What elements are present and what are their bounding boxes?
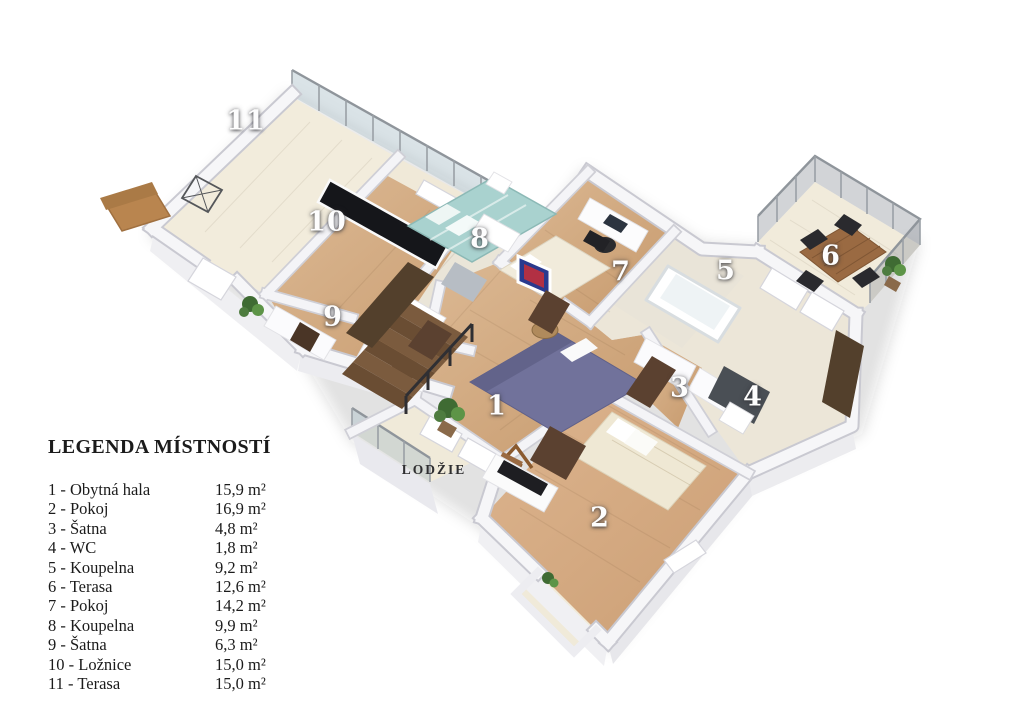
legend-item-area: 1,8 m²: [215, 538, 258, 557]
legend-item-area: 16,9 m²: [215, 499, 266, 518]
legend-item: 5 - Koupelna9,2 m²: [48, 558, 308, 577]
area-label-lodzie: LODŽIE: [402, 462, 467, 478]
legend-item: 4 - WC1,8 m²: [48, 538, 308, 557]
legend-item-label: 1 - Obytná hala: [48, 480, 150, 499]
floor-plan-page: 1110897561342LODŽIE LEGENDA MÍSTNOSTÍ 1 …: [0, 0, 1024, 724]
legend-item-label: 7 - Pokoj: [48, 596, 109, 615]
legend-item-label: 8 - Koupelna: [48, 616, 134, 635]
legend-item-label: 5 - Koupelna: [48, 558, 134, 577]
legend-item-area: 9,2 m²: [215, 558, 258, 577]
legend-item-area: 14,2 m²: [215, 596, 266, 615]
legend-item-area: 15,0 m²: [215, 674, 266, 693]
legend-item-label: 3 - Šatna: [48, 519, 107, 538]
legend-item: 6 - Terasa12,6 m²: [48, 577, 308, 596]
legend-item-label: 4 - WC: [48, 538, 96, 557]
legend-item: 7 - Pokoj14,2 m²: [48, 596, 308, 615]
legend-item: 10 - Ložnice15,0 m²: [48, 655, 308, 674]
legend-item-area: 4,8 m²: [215, 519, 258, 538]
legend-item-area: 15,0 m²: [215, 655, 266, 674]
legend-item: 8 - Koupelna9,9 m²: [48, 616, 308, 635]
legend-item-area: 12,6 m²: [215, 577, 266, 596]
legend-item-label: 10 - Ložnice: [48, 655, 131, 674]
legend-title: LEGENDA MÍSTNOSTÍ: [48, 436, 308, 459]
legend-rows: 1 - Obytná hala15,9 m²2 - Pokoj16,9 m²3 …: [48, 480, 308, 693]
legend-item-label: 11 - Terasa: [48, 674, 120, 693]
legend-item-label: 2 - Pokoj: [48, 499, 109, 518]
legend-item-area: 15,9 m²: [215, 480, 266, 499]
legend-item-label: 6 - Terasa: [48, 577, 113, 596]
legend-item-area: 9,9 m²: [215, 616, 258, 635]
legend-item: 2 - Pokoj16,9 m²: [48, 499, 308, 518]
legend-item: 9 - Šatna6,3 m²: [48, 635, 308, 654]
legend-item: 1 - Obytná hala15,9 m²: [48, 480, 308, 499]
legend: LEGENDA MÍSTNOSTÍ 1 - Obytná hala15,9 m²…: [48, 436, 308, 693]
legend-item-area: 6,3 m²: [215, 635, 258, 654]
legend-item: 11 - Terasa15,0 m²: [48, 674, 308, 693]
legend-item-label: 9 - Šatna: [48, 635, 107, 654]
legend-item: 3 - Šatna4,8 m²: [48, 519, 308, 538]
